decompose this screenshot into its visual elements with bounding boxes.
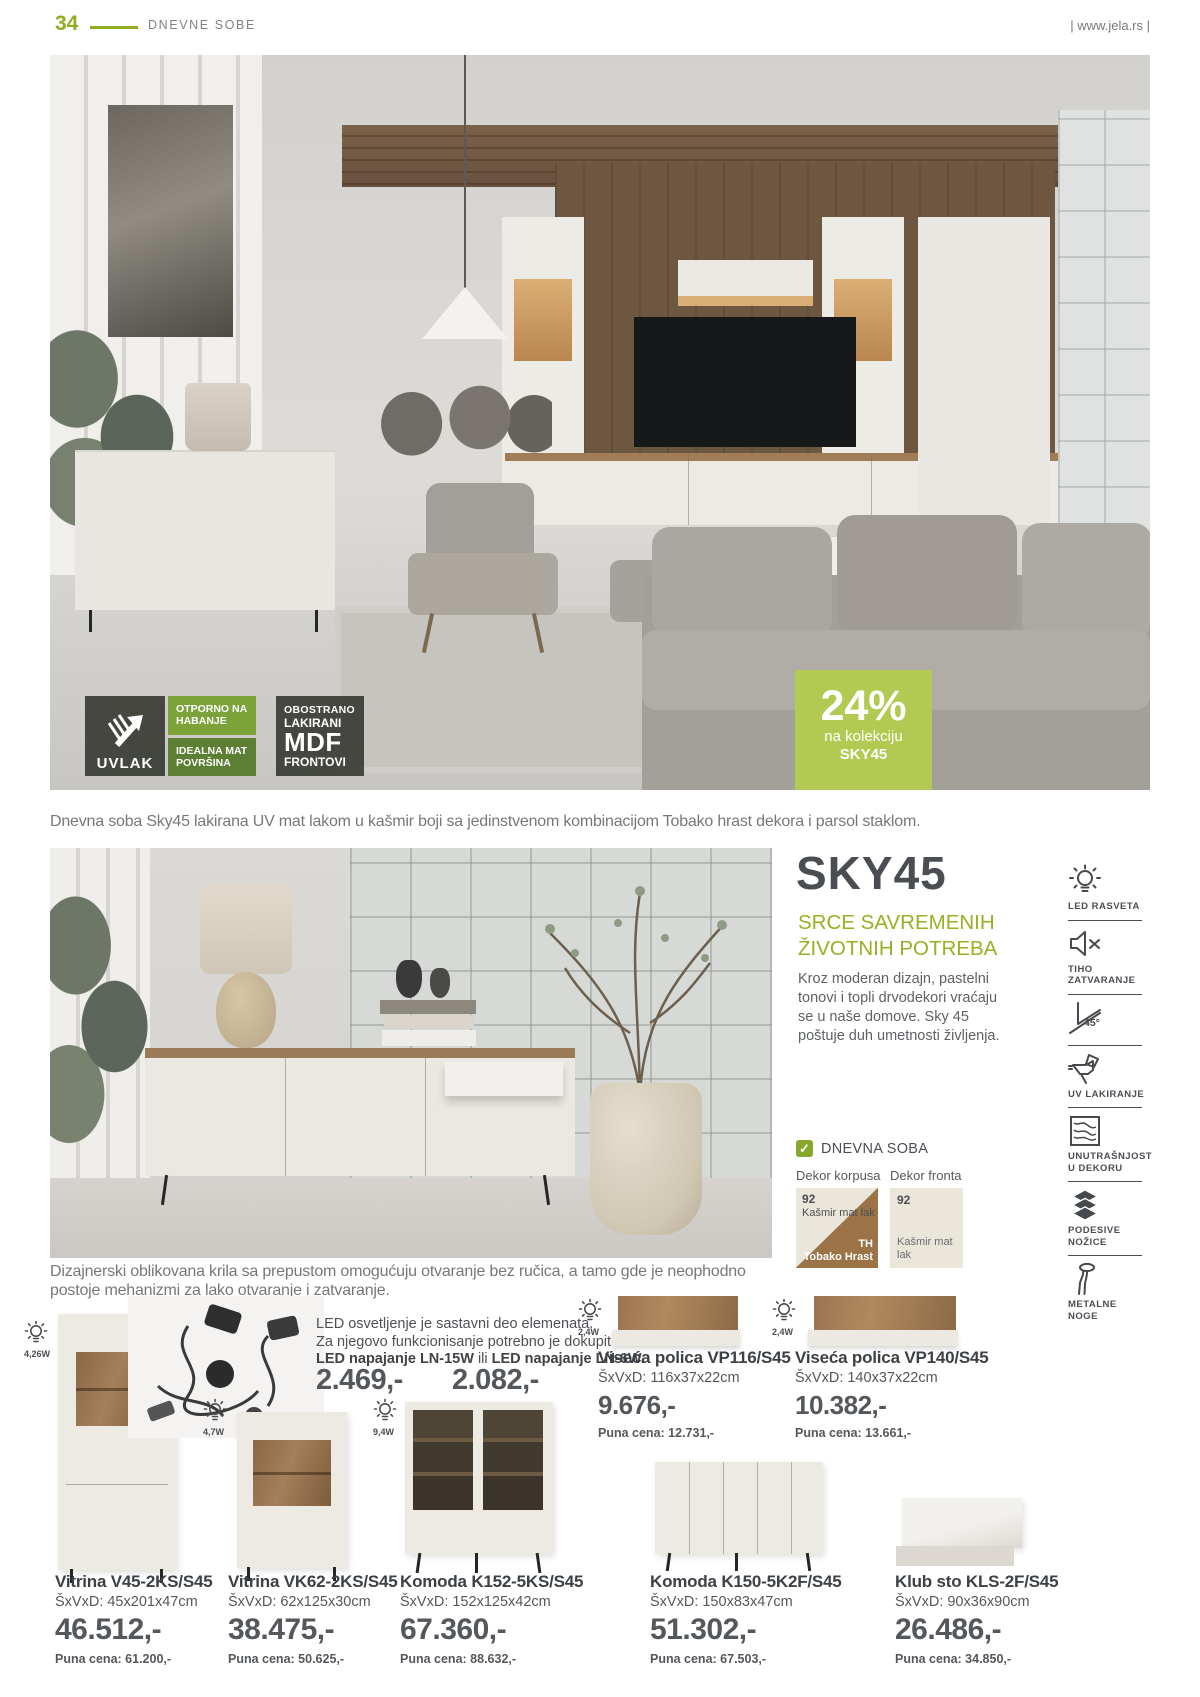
catalog-page: { "header": { "page_number": "34", "sect… bbox=[0, 0, 1200, 1697]
feature-uv-lakiranje: UV LAKIRANJE bbox=[1068, 1052, 1148, 1115]
subtitle-line1: SRCE SAVREMENIH bbox=[798, 910, 997, 936]
mdf-line3: MDF bbox=[284, 730, 364, 755]
lit-shelf bbox=[514, 279, 572, 361]
bulb-icon bbox=[578, 1298, 602, 1326]
product-price: 46.512,- bbox=[55, 1613, 161, 1647]
product-dims: ŠxVxD: 90x36x90cm bbox=[895, 1594, 1030, 1610]
armchair-leg bbox=[532, 613, 544, 653]
swatch-kasmir: 92Kašmir mat lak bbox=[802, 1193, 875, 1220]
armchair-leg bbox=[422, 613, 434, 653]
sofa-cushion bbox=[837, 515, 1017, 635]
decor-vase bbox=[396, 960, 422, 998]
product-price: 67.360,- bbox=[400, 1613, 506, 1647]
floating-shelf bbox=[678, 260, 813, 306]
product-name: Klub sto KLS-2F/S45 bbox=[895, 1572, 1058, 1592]
shelf-body bbox=[808, 1330, 958, 1346]
drawer-seam bbox=[66, 1484, 168, 1485]
sideboard bbox=[145, 1048, 575, 1176]
divider bbox=[1068, 1045, 1142, 1046]
feature-label: TIHO ZATVARANJE bbox=[1068, 964, 1148, 987]
product-photo-vp140 bbox=[808, 1292, 958, 1350]
spray-gun-icon bbox=[1068, 1052, 1148, 1086]
product-price: 38.475,- bbox=[228, 1613, 334, 1647]
door-seam bbox=[285, 1058, 286, 1176]
feature-tiho-zatvaranje: TIHO ZATVARANJE bbox=[1068, 927, 1148, 1001]
watt-label: 4,7W bbox=[203, 1427, 224, 1437]
product-card-v45: Vitrina V45-2KS/S45 ŠxVxD: 45x201x47cm 4… bbox=[55, 1572, 212, 1666]
product-name: Vitrina V45-2KS/S45 bbox=[55, 1572, 212, 1592]
checkmark-icon: ✓ bbox=[796, 1140, 813, 1157]
glass-door bbox=[413, 1410, 473, 1510]
mute-speaker-icon bbox=[1068, 927, 1148, 961]
swatch-name: Kašmir mat lak bbox=[897, 1236, 963, 1262]
product-full-price: Puna cena: 34.850,- bbox=[895, 1652, 1011, 1666]
product-photo-k150 bbox=[655, 1462, 823, 1554]
wood-shelf bbox=[814, 1296, 956, 1332]
product-dims: ŠxVxD: 152x125x42cm bbox=[400, 1594, 551, 1610]
watt-label: 9,4W bbox=[373, 1427, 394, 1437]
lamp-glass-base bbox=[216, 972, 276, 1048]
product-dims: ŠxVxD: 150x83x47cm bbox=[650, 1594, 793, 1610]
furniture-leg bbox=[735, 1553, 738, 1571]
divider bbox=[1068, 1181, 1142, 1182]
bulb-icon bbox=[24, 1320, 48, 1348]
pendant-cord bbox=[464, 55, 466, 289]
table-base bbox=[896, 1546, 1014, 1566]
wood-shelf bbox=[618, 1296, 738, 1332]
layers-icon bbox=[1068, 1188, 1148, 1222]
product-name: Viseća polica VP116/S45 bbox=[598, 1348, 791, 1368]
swatch-code: TH bbox=[858, 1238, 873, 1250]
feature-unutrasnjost-u-dekoru: UNUTRAŠNJOST U DEKORU bbox=[1068, 1114, 1148, 1188]
product-price: 26.486,- bbox=[895, 1613, 1001, 1647]
feature-podesive-nozice: PODESIVE NOŽICE bbox=[1068, 1188, 1148, 1262]
swatch-tobako: THTobako Hrast bbox=[804, 1238, 873, 1264]
led-bulb-icon bbox=[1068, 864, 1148, 898]
collection-photo bbox=[50, 848, 772, 1258]
furniture-leg bbox=[666, 1553, 671, 1571]
hero-photo: UVLAK OTPORNO NA HABANJE IDEALNA MAT POV… bbox=[50, 55, 1150, 790]
door-seam bbox=[425, 1058, 426, 1176]
door-seam bbox=[757, 1462, 758, 1554]
hero-caption: Dnevna soba Sky45 lakirana UV mat lakom … bbox=[50, 812, 1150, 831]
website-link[interactable]: | www.jela.rs | bbox=[990, 18, 1150, 33]
wood-inset bbox=[253, 1440, 331, 1506]
led-price-15w: 2.469,- bbox=[316, 1364, 403, 1397]
door-seam bbox=[791, 1462, 792, 1554]
side-vitrine bbox=[918, 217, 1050, 523]
book-stack bbox=[380, 1000, 480, 1048]
divider bbox=[1068, 1107, 1142, 1108]
badge-otporno: OTPORNO NA HABANJE bbox=[168, 696, 256, 735]
angle-badge: 45° bbox=[1084, 1017, 1100, 1029]
collection-title: SKY45 bbox=[796, 846, 947, 900]
divider bbox=[1068, 1255, 1142, 1256]
swatch-code: 92 bbox=[897, 1193, 910, 1207]
armchair bbox=[408, 483, 558, 653]
collection-description: Kroz moderan dizajn, pastelni tonovi i t… bbox=[798, 970, 1010, 1046]
led-price-6w: 2.082,- bbox=[452, 1364, 539, 1397]
miter-joint-icon: 45° bbox=[1068, 1001, 1148, 1035]
product-card-k150: Komoda K150-5K2F/S45 ŠxVxD: 150x83x47cm … bbox=[650, 1572, 842, 1666]
lamp-shade bbox=[200, 884, 292, 974]
watt-indicator: 2,4W bbox=[772, 1298, 812, 1337]
badge-idealna: IDEALNA MAT POVRŠINA bbox=[168, 738, 256, 777]
product-name: Komoda K150-5K2F/S45 bbox=[650, 1572, 842, 1592]
wood-texture-icon bbox=[1068, 1114, 1148, 1148]
decor-vase bbox=[430, 968, 450, 998]
product-price: 10.382,- bbox=[795, 1390, 886, 1421]
book bbox=[382, 1030, 476, 1046]
feature-led-rasveta: LED RASVETA bbox=[1068, 864, 1148, 927]
product-dims: ŠxVxD: 116x37x22cm bbox=[598, 1370, 740, 1386]
product-full-price: Puna cena: 13.661,- bbox=[795, 1426, 911, 1440]
armchair-seat bbox=[408, 553, 558, 615]
watt-label: 4,26W bbox=[24, 1349, 50, 1359]
open-drawer bbox=[445, 1062, 563, 1096]
product-card-kls: Klub sto KLS-2F/S45 ŠxVxD: 90x36x90cm 26… bbox=[895, 1572, 1058, 1666]
door-seam bbox=[688, 453, 689, 525]
wall-art bbox=[108, 105, 233, 337]
swatch-code: 92 bbox=[802, 1192, 815, 1206]
furniture-leg bbox=[475, 1553, 478, 1573]
product-card-vp140: Viseća polica VP140/S45 ŠxVxD: 140x37x22… bbox=[795, 1348, 989, 1440]
door-seam bbox=[689, 1462, 690, 1554]
feature-metalne-noge: METALNE NOGE bbox=[1068, 1262, 1148, 1322]
swatch-front: 92 Kašmir mat lak bbox=[890, 1188, 963, 1268]
plant-leaves bbox=[50, 878, 160, 1148]
feature-label: UV LAKIRANJE bbox=[1068, 1089, 1148, 1101]
product-full-price: Puna cena: 88.632,- bbox=[400, 1652, 516, 1666]
book bbox=[380, 1000, 476, 1014]
product-full-price: Puna cena: 67.503,- bbox=[650, 1652, 766, 1666]
subtitle-line2: ŽIVOTNIH POTREBA bbox=[798, 936, 997, 962]
product-photo-klub-sto bbox=[892, 1498, 1032, 1572]
feature-label: METALNE NOGE bbox=[1068, 1299, 1148, 1322]
product-card-vp116: Viseća polica VP116/S45 ŠxVxD: 116x37x22… bbox=[598, 1348, 791, 1440]
product-full-price: Puna cena: 12.731,- bbox=[598, 1426, 714, 1440]
section-title: DNEVNE SOBE bbox=[148, 18, 256, 32]
divider bbox=[1068, 994, 1142, 995]
features-column: LED RASVETA TIHO ZATVARANJE 45° UV LAKIR… bbox=[1068, 864, 1148, 1322]
product-card-k152: Komoda K152-5KS/S45 ŠxVxD: 152x125x42cm … bbox=[400, 1572, 583, 1666]
table-lamp bbox=[185, 383, 251, 451]
sofa-cushion bbox=[652, 527, 832, 637]
uvlak-box: UVLAK bbox=[85, 696, 165, 776]
discount-collection: SKY45 bbox=[795, 746, 932, 764]
product-dims: ŠxVxD: 62x125x30cm bbox=[228, 1594, 371, 1610]
tv-screen bbox=[634, 317, 856, 447]
uvlak-label: UVLAK bbox=[97, 755, 154, 772]
dining-chairs bbox=[372, 355, 552, 480]
mdf-line4: FRONTOVI bbox=[284, 755, 364, 769]
discount-percent: 24% bbox=[795, 684, 932, 728]
bulb-icon bbox=[373, 1398, 397, 1426]
glass-block-wall bbox=[1058, 110, 1150, 580]
feature-label: UNUTRAŠNJOST U DEKORU bbox=[1068, 1151, 1148, 1174]
uvlak-cells: OTPORNO NA HABANJE IDEALNA MAT POVRŠINA bbox=[168, 696, 256, 776]
furniture-leg bbox=[89, 610, 92, 632]
room-tag: ✓ DNEVNA SOBA bbox=[796, 1140, 928, 1157]
discount-badge: 24% na kolekciju SKY45 bbox=[795, 670, 932, 790]
page-number: 34 bbox=[55, 12, 78, 36]
product-price: 9.676,- bbox=[598, 1390, 675, 1421]
shelf-body bbox=[612, 1330, 740, 1346]
discount-text: na kolekciju bbox=[795, 728, 932, 746]
product-price: 51.302,- bbox=[650, 1613, 756, 1647]
sofa-cushion bbox=[1022, 523, 1150, 638]
table-top bbox=[902, 1498, 1022, 1548]
dekor-korpusa-label: Dekor korpusa bbox=[796, 1168, 881, 1183]
product-card-vk62: Vitrina VK62-2KS/S45 ŠxVxD: 62x125x30cm … bbox=[228, 1572, 398, 1666]
swatch-name: Tobako Hrast bbox=[804, 1251, 873, 1263]
book bbox=[384, 1015, 474, 1029]
furniture-leg bbox=[416, 1553, 422, 1573]
room-tag-label: DNEVNA SOBA bbox=[821, 1141, 928, 1157]
product-full-price: Puna cena: 61.200,- bbox=[55, 1652, 171, 1666]
product-photo-vp116 bbox=[612, 1292, 740, 1350]
watt-label: 2,4W bbox=[772, 1327, 793, 1337]
mdf-line1: OBOSTRANO bbox=[284, 704, 364, 716]
swatch-name: Kašmir mat lak bbox=[802, 1207, 875, 1219]
feature-label: PODESIVE NOŽICE bbox=[1068, 1225, 1148, 1248]
feature-45-spoj: 45° bbox=[1068, 1001, 1148, 1052]
product-name: Viseća polica VP140/S45 bbox=[795, 1348, 989, 1368]
product-name: Komoda K152-5KS/S45 bbox=[400, 1572, 583, 1592]
watt-label: 2,4W bbox=[578, 1327, 599, 1337]
metal-leg-icon bbox=[1068, 1262, 1148, 1296]
dekor-fronta-label: Dekor fronta bbox=[890, 1168, 962, 1183]
mdf-badge: OBOSTRANO LAKIRANI MDF FRONTOVI bbox=[276, 696, 364, 776]
uv-arrow-icon bbox=[105, 709, 145, 753]
product-dims: ŠxVxD: 45x201x47cm bbox=[55, 1594, 198, 1610]
feature-label: LED RASVETA bbox=[1068, 901, 1148, 913]
furniture-leg bbox=[536, 1553, 542, 1573]
bulb-icon bbox=[772, 1298, 796, 1326]
sideboard-left bbox=[75, 450, 335, 610]
header-accent-line bbox=[90, 26, 138, 29]
product-photo-vk62 bbox=[237, 1412, 347, 1568]
floor-pot bbox=[590, 1083, 702, 1235]
product-dims: ŠxVxD: 140x37x22cm bbox=[795, 1370, 938, 1386]
uvlak-badge: UVLAK OTPORNO NA HABANJE IDEALNA MAT POV… bbox=[85, 696, 256, 776]
divider bbox=[1068, 920, 1142, 921]
product-name: Vitrina VK62-2KS/S45 bbox=[228, 1572, 398, 1592]
furniture-leg bbox=[806, 1553, 811, 1571]
bulb-icon bbox=[203, 1398, 227, 1426]
furniture-leg bbox=[315, 610, 318, 632]
glass-door bbox=[483, 1410, 543, 1510]
product-photo-k152 bbox=[405, 1402, 553, 1554]
product-full-price: Puna cena: 50.625,- bbox=[228, 1652, 344, 1666]
collection-subtitle: SRCE SAVREMENIH ŽIVOTNIH POTREBA bbox=[798, 910, 997, 962]
door-seam bbox=[723, 1462, 724, 1554]
swatch-korpus: 92Kašmir mat lak THTobako Hrast bbox=[796, 1188, 878, 1268]
